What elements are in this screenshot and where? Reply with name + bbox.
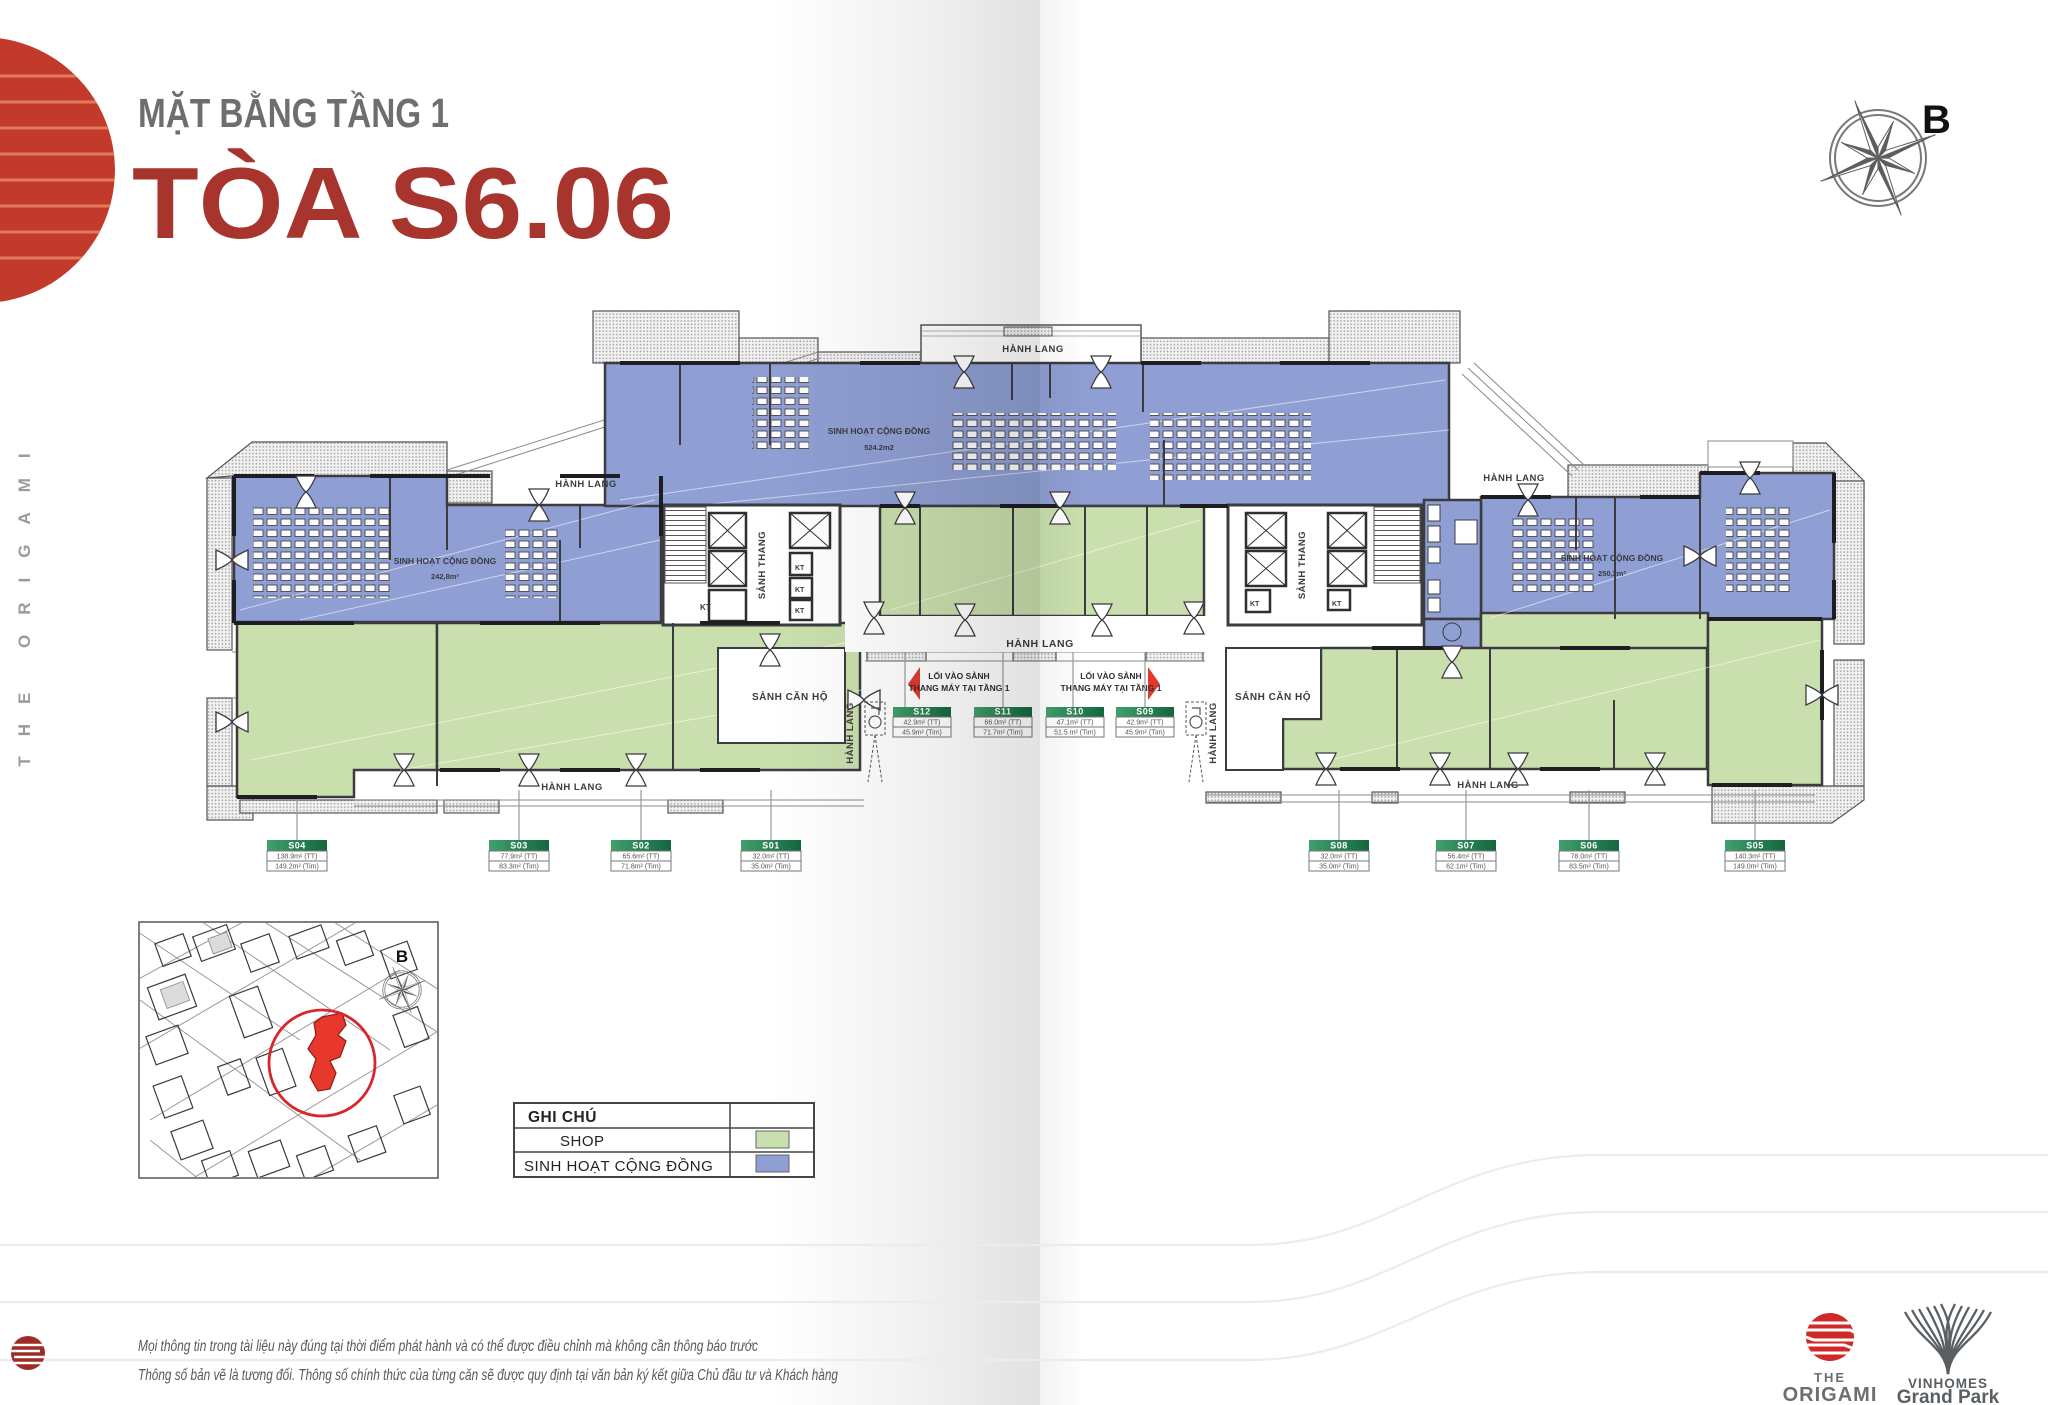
- svg-text:149.0m² (Tim): 149.0m² (Tim): [1733, 864, 1777, 871]
- svg-text:KT: KT: [1332, 601, 1342, 608]
- svg-text:B: B: [1922, 98, 1951, 142]
- svg-text:42.9m² (TT): 42.9m² (TT): [1127, 720, 1164, 727]
- svg-text:149.2m² (Tim): 149.2m² (Tim): [275, 864, 319, 871]
- svg-text:45.9m² (Tim): 45.9m² (Tim): [1125, 730, 1165, 737]
- svg-text:78.0m² (TT): 78.0m² (TT): [1571, 854, 1608, 861]
- svg-text:Thông số bản vẽ là tương đối.: Thông số bản vẽ là tương đối. Thông số c…: [138, 1367, 838, 1384]
- svg-text:HÀNH LANG: HÀNH LANG: [1208, 702, 1219, 764]
- svg-text:B: B: [396, 947, 408, 966]
- svg-text:S06: S06: [1580, 841, 1598, 851]
- svg-text:77.9m² (TT): 77.9m² (TT): [501, 854, 538, 861]
- svg-text:HÀNH LANG: HÀNH LANG: [541, 782, 603, 793]
- svg-text:ORIGAMI: ORIGAMI: [1783, 1384, 1878, 1405]
- svg-text:TÒA S6.06: TÒA S6.06: [132, 148, 674, 260]
- svg-text:GHI CHÚ: GHI CHÚ: [528, 1108, 597, 1126]
- svg-text:S03: S03: [510, 841, 528, 851]
- svg-text:65.6m² (TT): 65.6m² (TT): [623, 854, 660, 861]
- svg-text:MẶT BẰNG TẦNG 1: MẶT BẰNG TẦNG 1: [138, 90, 449, 136]
- svg-text:S07: S07: [1457, 841, 1475, 851]
- svg-text:S08: S08: [1330, 841, 1348, 851]
- svg-text:62.1m² (Tim): 62.1m² (Tim): [1446, 864, 1486, 871]
- svg-text:242,8m²: 242,8m²: [431, 572, 459, 581]
- svg-text:THE: THE: [1814, 1370, 1846, 1385]
- svg-text:Grand Park: Grand Park: [1897, 1387, 2000, 1405]
- svg-text:S09: S09: [1136, 707, 1154, 717]
- svg-text:HÀNH LANG: HÀNH LANG: [1483, 473, 1545, 484]
- svg-text:SẢNH CĂN HỘ: SẢNH CĂN HỘ: [1235, 690, 1311, 703]
- svg-text:KT: KT: [700, 603, 711, 612]
- svg-text:LỐI VÀO SẢNH: LỐI VÀO SẢNH: [1080, 670, 1141, 681]
- svg-text:SHOP: SHOP: [560, 1133, 605, 1150]
- svg-text:Mọi thông tin trong tài liệu n: Mọi thông tin trong tài liệu này đúng tạ…: [138, 1338, 758, 1355]
- svg-text:S02: S02: [632, 841, 650, 851]
- svg-text:56.4m² (TT): 56.4m² (TT): [1448, 854, 1485, 861]
- svg-text:35.0m² (Tim): 35.0m² (Tim): [1319, 864, 1359, 871]
- svg-text:250,2m²: 250,2m²: [1598, 569, 1626, 578]
- svg-text:SẢNH THANG: SẢNH THANG: [756, 531, 768, 599]
- svg-text:32.0m² (TT): 32.0m² (TT): [1321, 854, 1358, 861]
- svg-text:140.3m² (TT): 140.3m² (TT): [1735, 854, 1776, 861]
- svg-text:71.8m² (Tim): 71.8m² (Tim): [621, 864, 661, 871]
- svg-text:SINH HOẠT CỘNG ĐỒNG: SINH HOẠT CỘNG ĐỒNG: [1561, 552, 1664, 563]
- svg-text:SINH HOẠT CỘNG ĐỒNG: SINH HOẠT CỘNG ĐỒNG: [394, 555, 497, 566]
- svg-text:S04: S04: [288, 841, 306, 851]
- svg-text:THE ORIGAMI: THE ORIGAMI: [15, 433, 34, 766]
- svg-text:138.9m² (TT): 138.9m² (TT): [277, 854, 318, 861]
- svg-text:SẢNH THANG: SẢNH THANG: [1296, 531, 1308, 599]
- svg-text:HÀNH LANG: HÀNH LANG: [1457, 780, 1519, 791]
- svg-text:HÀNH LANG: HÀNH LANG: [555, 479, 617, 490]
- svg-text:KT: KT: [1250, 601, 1260, 608]
- svg-text:83.3m² (Tim): 83.3m² (Tim): [499, 864, 539, 871]
- svg-text:83.5m² (Tim): 83.5m² (Tim): [1569, 864, 1609, 871]
- svg-text:S05: S05: [1746, 841, 1764, 851]
- svg-text:SINH HOẠT CỘNG ĐỒNG: SINH HOẠT CỘNG ĐỒNG: [524, 1157, 713, 1175]
